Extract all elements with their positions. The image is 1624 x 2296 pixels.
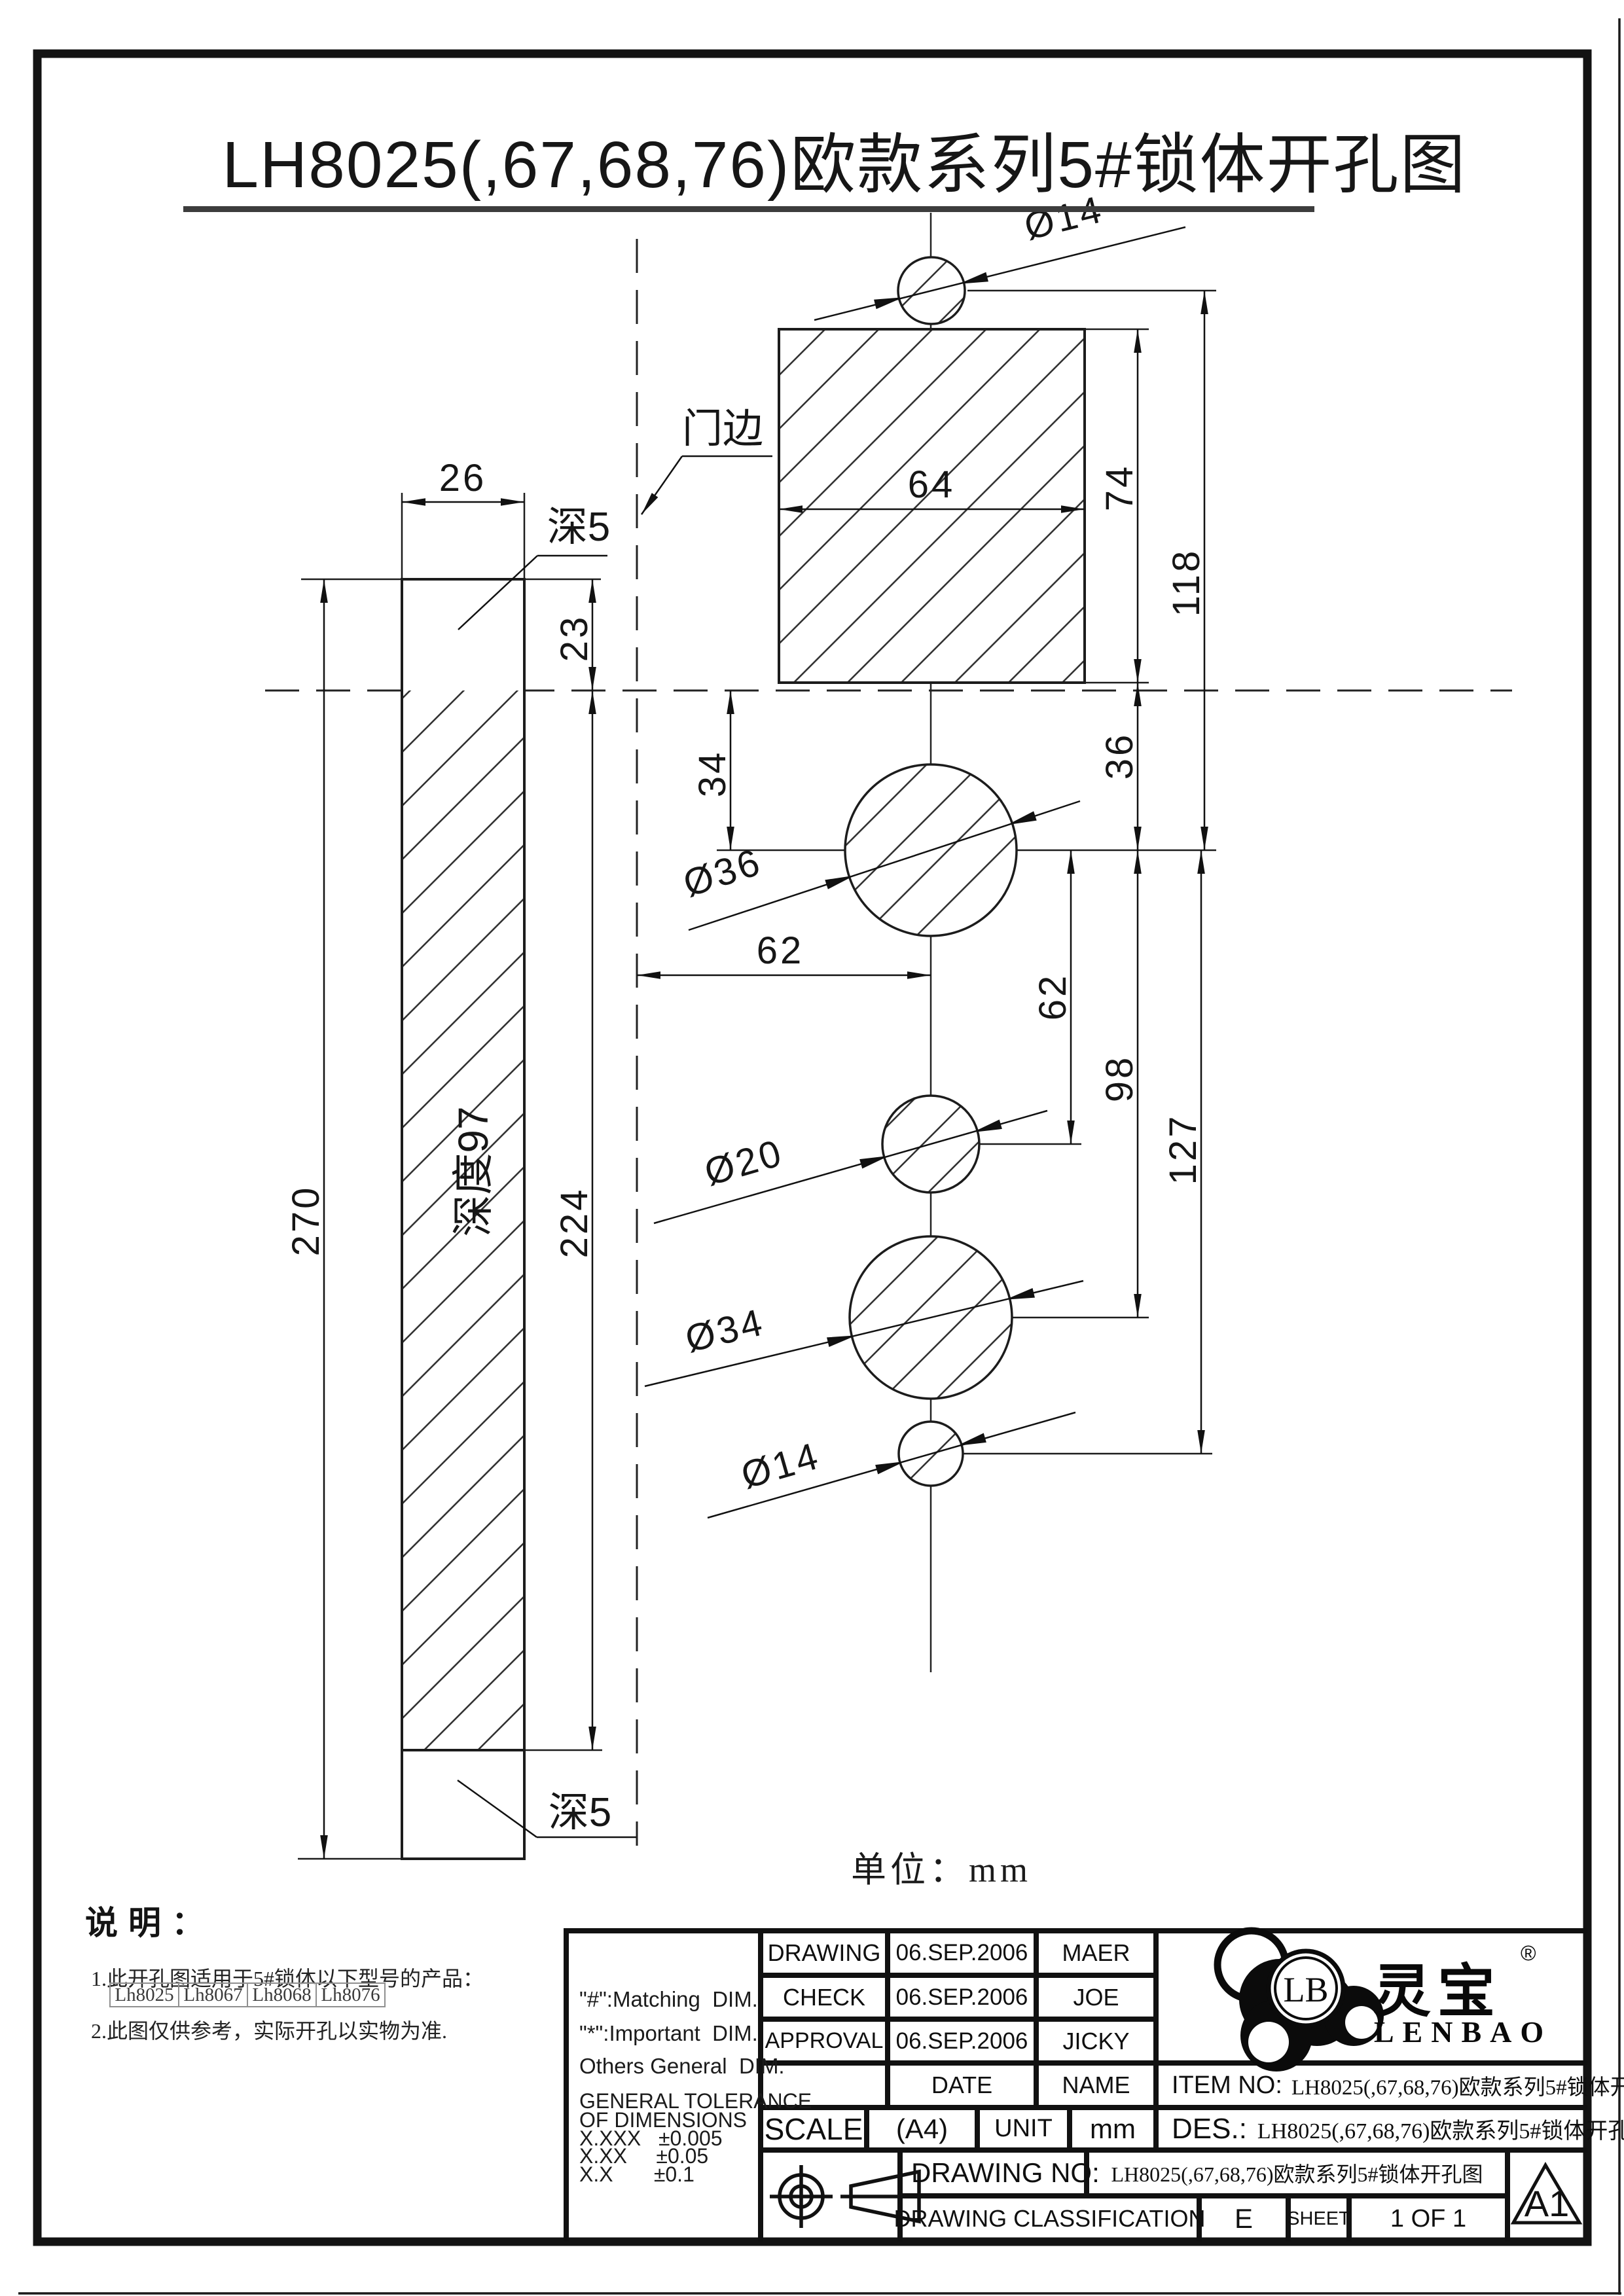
tb-scale-label: SCALE: [761, 2108, 867, 2150]
tb-check-name: JOE: [1036, 1975, 1156, 2019]
tb-des-row: DES.: LH8025(,67,68,76)欧款系列5#锁体开孔图: [1172, 2108, 1581, 2150]
dim-dia34: Ø34: [681, 1300, 768, 1361]
dim-dia20: Ø20: [700, 1131, 788, 1194]
door-edge-label: 门边: [682, 406, 763, 452]
dim-62-vertical: 62: [1032, 973, 1074, 1021]
sheet-title: LH8025(,67,68,76)欧款系列5#锁体开孔图: [124, 111, 1564, 206]
dim-36: 36: [1098, 732, 1141, 780]
tb-item-row: ITEM NO: LH8025(,67,68,76)欧款系列5#锁体开孔图: [1172, 2063, 1581, 2108]
tb-classification-label: DRAWING CLASSIFICATION: [900, 2196, 1199, 2242]
model-cell: Lh8067: [179, 1982, 248, 2007]
dim-23: 23: [553, 615, 596, 662]
format-a1-text: A1: [1525, 2183, 1570, 2224]
dim-34: 34: [691, 750, 734, 798]
lock-case-section: [779, 329, 1085, 683]
tb-name-label: NAME: [1036, 2063, 1156, 2108]
dim-127: 127: [1162, 1114, 1204, 1185]
title-underline: [183, 206, 1314, 212]
tb-drawing-name: MAER: [1036, 1931, 1156, 1975]
model-cell: Lh8068: [248, 1982, 317, 2007]
model-table: Lh8025 Lh8067 Lh8068 Lh8076: [109, 1982, 386, 2007]
logo-en-text: LENBAO: [1368, 2015, 1558, 2049]
tb-drawing-date: 06.SEP.2006: [888, 1931, 1036, 1975]
drawing-sheet: 26 270 23 224 64 74 118 34 36 62 62 98 1…: [0, 0, 1624, 2296]
dim-62-horizontal: 62: [757, 929, 804, 972]
tb-unit-value: mm: [1070, 2108, 1156, 2150]
lenbao-logo-icon: LB: [1218, 1931, 1384, 2072]
tb-sheet-label: SHEET: [1288, 2196, 1349, 2242]
tb-approval-date: 06.SEP.2006: [888, 2019, 1036, 2063]
tb-drawing-no-label: DRAWING NO:: [911, 2150, 1087, 2196]
logo-registered-icon: ®: [1521, 1941, 1536, 1965]
tb-classification-value: E: [1199, 2196, 1288, 2242]
model-cell: Lh8025: [109, 1982, 179, 2007]
depth5-bottom-label: 深5: [549, 1790, 611, 1835]
tb-drawing-label: DRAWING: [761, 1931, 888, 1975]
dim-dia36: Ø36: [678, 840, 767, 905]
tb-check-label: CHECK: [761, 1975, 888, 2019]
tol-important: "*":Important DIM.: [579, 2021, 757, 2046]
format-a1-badge: A1: [1513, 2165, 1579, 2224]
tb-date-label: DATE: [888, 2063, 1036, 2108]
note-2: 2.此图仅供参考，实际开孔以实物为准.: [91, 2015, 447, 2045]
tb-sheet-value: 1 OF 1: [1349, 2196, 1507, 2242]
dim-270: 270: [285, 1185, 327, 1257]
tol-matching: "#":Matching DIM.: [579, 1987, 757, 2012]
dim-224: 224: [553, 1187, 596, 1259]
tb-approval-name: JICKY: [1036, 2019, 1156, 2063]
tb-des-label: DES.:: [1172, 2113, 1247, 2145]
logo-lb-text: LB: [1283, 1970, 1328, 2009]
dim-64: 64: [908, 463, 956, 506]
dim-98: 98: [1098, 1055, 1141, 1103]
unit-note: 单位：mm: [851, 1840, 1032, 1892]
depth5-top-label: 深5: [547, 505, 610, 550]
tb-check-date: 06.SEP.2006: [888, 1975, 1036, 2019]
dim-74: 74: [1098, 464, 1141, 512]
dim-26: 26: [439, 457, 487, 499]
tb-paper-size: (A4): [867, 2108, 977, 2150]
model-cell: Lh8076: [317, 1982, 386, 2007]
tb-des-value: LH8025(,67,68,76)欧款系列5#锁体开孔图: [1257, 2113, 1624, 2145]
tb-unit-label: UNIT: [977, 2108, 1070, 2150]
tol-others: Others General DIM.: [579, 2054, 757, 2079]
tb-item-label: ITEM NO:: [1172, 2072, 1282, 2100]
depth97-label: 深度97: [450, 1106, 497, 1236]
dim-118: 118: [1165, 548, 1208, 617]
tb-drawing-no-value: LH8025(,67,68,76)欧款系列5#锁体开孔图: [1087, 2150, 1507, 2196]
tol-x: X.X ±0.1: [579, 2162, 757, 2187]
tb-item-value: LH8025(,67,68,76)欧款系列5#锁体开孔图: [1291, 2070, 1624, 2101]
notes-heading: 说明：: [85, 1897, 215, 1944]
